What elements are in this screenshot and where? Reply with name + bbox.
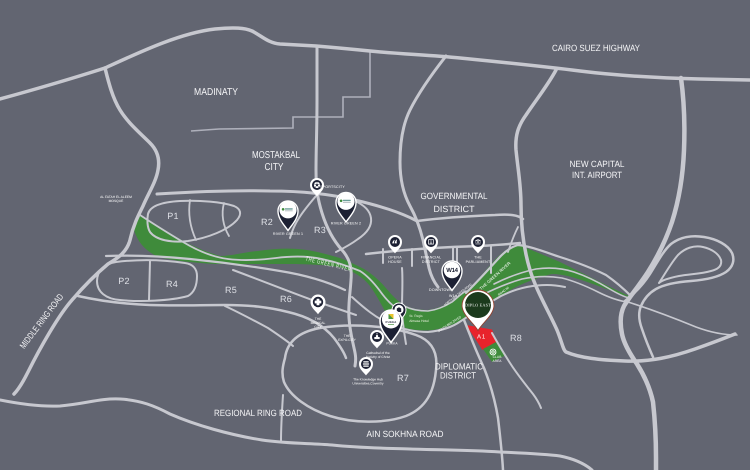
svg-text:CAIRO SUEZ HIGHWAY: CAIRO SUEZ HIGHWAY — [552, 43, 640, 53]
svg-text:MOSTAKBAL: MOSTAKBAL — [252, 150, 300, 161]
svg-text:PUKKA: PUKKA — [386, 342, 398, 346]
svg-text:REGIONAL RING ROAD: REGIONAL RING ROAD — [214, 408, 302, 418]
svg-text:EXPO-CITY: EXPO-CITY — [338, 338, 357, 342]
svg-text:R5: R5 — [225, 285, 237, 295]
svg-text:MOSQUE: MOSQUE — [109, 199, 124, 203]
svg-text:W14: W14 — [449, 294, 457, 298]
svg-text:AREA: AREA — [493, 359, 503, 363]
svg-text:PUKKA: PUKKA — [386, 320, 397, 324]
svg-text:OPERA: OPERA — [388, 256, 402, 260]
svg-text:P2: P2 — [118, 276, 130, 286]
svg-text:DISTRICT: DISTRICT — [440, 371, 476, 381]
svg-text:St. Regis: St. Regis — [409, 314, 423, 318]
svg-text:DISTRICT: DISTRICT — [434, 204, 475, 214]
svg-text:R2: R2 — [261, 217, 273, 227]
svg-text:CITY: CITY — [265, 162, 284, 173]
svg-text:CITY: CITY — [314, 325, 322, 329]
svg-text:R7: R7 — [397, 373, 409, 383]
svg-text:FINANCIAL: FINANCIAL — [421, 256, 442, 260]
svg-text:HOUSE: HOUSE — [388, 260, 402, 264]
svg-text:INT. AIRPORT: INT. AIRPORT — [572, 170, 622, 180]
svg-text:P1: P1 — [167, 211, 179, 221]
svg-text:SPORTSCITY: SPORTSCITY — [320, 185, 345, 189]
svg-text:GOVERNMENTAL: GOVERNMENTAL — [421, 191, 488, 201]
svg-text:RIVER GREEN 2: RIVER GREEN 2 — [331, 222, 361, 226]
svg-text:Almasa Hotel: Almasa Hotel — [409, 319, 429, 323]
svg-text:RIVER GREEN 1: RIVER GREEN 1 — [273, 232, 303, 236]
svg-text:DOWNTOWN: DOWNTOWN — [429, 288, 453, 292]
svg-text:MADINATY: MADINATY — [194, 87, 238, 98]
svg-text:PARLIAMENT: PARLIAMENT — [466, 260, 491, 264]
svg-text:R6: R6 — [280, 294, 292, 304]
svg-text:R8: R8 — [510, 333, 522, 343]
svg-text:A1: A1 — [477, 334, 486, 341]
svg-text:W14: W14 — [446, 267, 458, 274]
svg-text:DIPLO EAST: DIPLO EAST — [465, 303, 491, 308]
svg-text:AIN SOKHNA ROAD: AIN SOKHNA ROAD — [367, 429, 444, 439]
svg-text:R3: R3 — [314, 225, 326, 235]
svg-text:THE: THE — [474, 256, 482, 260]
svg-text:Universities,Coventry: Universities,Coventry — [352, 382, 383, 386]
svg-text:DISTRICT: DISTRICT — [422, 260, 441, 264]
svg-text:NEW CAPITAL: NEW CAPITAL — [570, 159, 625, 169]
svg-text:R4: R4 — [166, 279, 178, 289]
